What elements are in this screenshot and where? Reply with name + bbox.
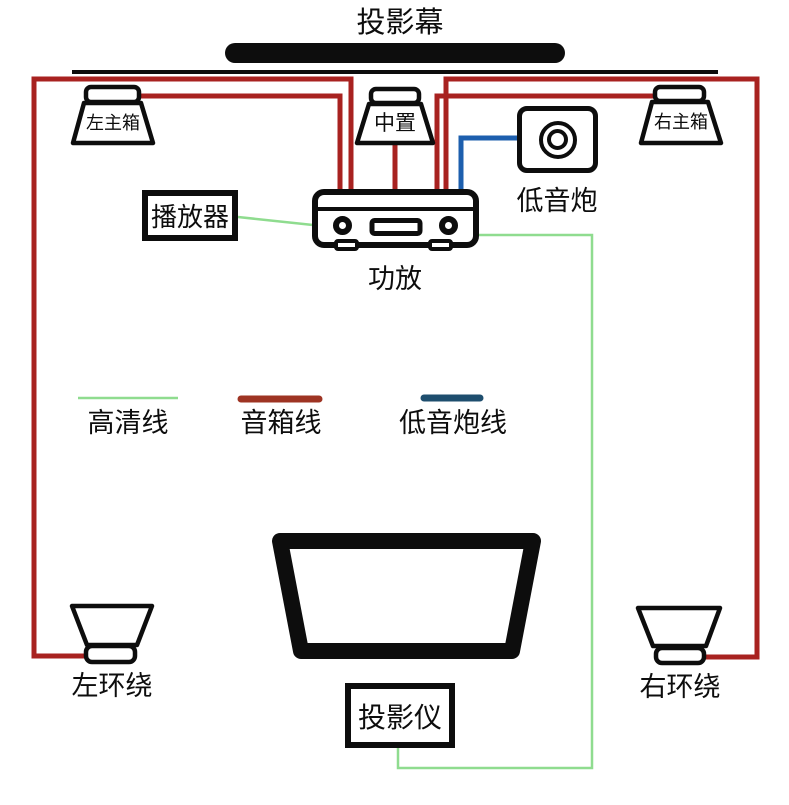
projector-label: 投影仪 xyxy=(358,696,442,736)
center-speaker-label: 中置 xyxy=(366,111,424,135)
player-box: 播放器 xyxy=(142,190,238,241)
amplifier-foot-left xyxy=(334,239,359,251)
amplifier-lid-line xyxy=(318,207,473,211)
wire-hd-player-amp xyxy=(238,217,313,225)
amplifier-icon xyxy=(312,189,479,248)
subwoofer-icon xyxy=(517,106,598,173)
amplifier-knob-left-icon xyxy=(333,216,352,235)
home-theater-wiring-diagram: 投影幕 xyxy=(0,0,789,805)
right-main-speaker-label: 右主箱 xyxy=(643,113,719,134)
player-label: 播放器 xyxy=(151,197,229,234)
projector-box: 投影仪 xyxy=(345,683,455,748)
subwoofer-driver-inner-icon xyxy=(547,129,568,150)
amplifier-knob-right-icon xyxy=(439,216,458,235)
projection-screen-bar xyxy=(225,43,565,63)
sofa-icon xyxy=(280,541,533,651)
left-surround-speaker-icon xyxy=(72,606,152,662)
left-main-speaker-label: 左主箱 xyxy=(75,114,151,135)
subwoofer-driver-icon xyxy=(539,121,577,159)
amplifier-display-icon xyxy=(369,218,422,236)
amplifier-foot-right xyxy=(428,239,453,251)
wire-left-main xyxy=(137,96,340,194)
wire-subwoofer xyxy=(461,138,517,194)
